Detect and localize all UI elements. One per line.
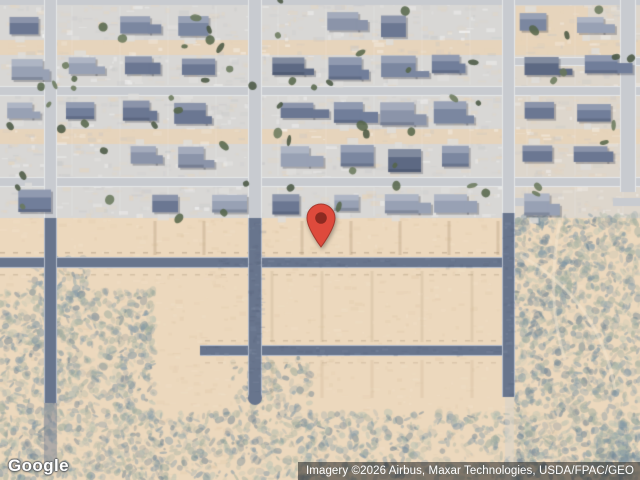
map-marker[interactable] — [306, 203, 336, 248]
pin-body — [307, 204, 335, 247]
attribution-text: Imagery ©2026 Airbus, Maxar Technologies… — [306, 465, 634, 477]
map-viewport[interactable]: Google Imagery ©2026 Airbus, Maxar Techn… — [0, 0, 640, 480]
map-attribution: Imagery ©2026 Airbus, Maxar Technologies… — [298, 462, 640, 480]
google-logo[interactable]: Google — [8, 456, 69, 476]
pin-dot — [315, 212, 327, 224]
